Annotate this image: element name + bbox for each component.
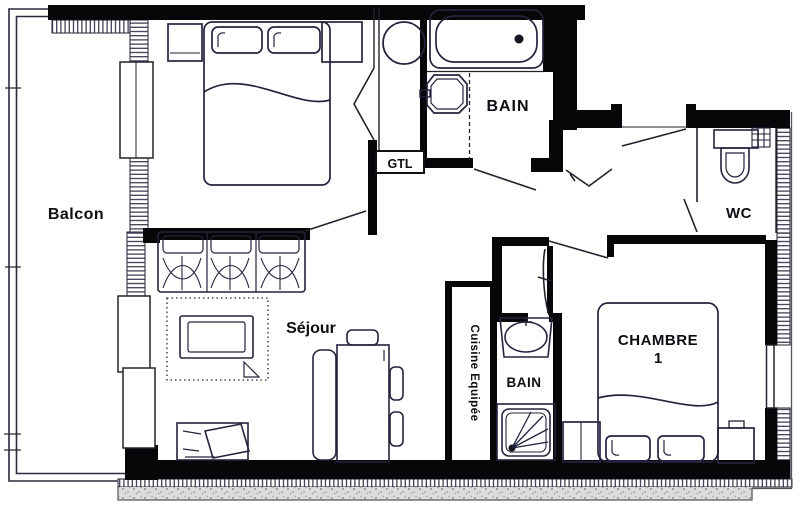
desk-right — [322, 22, 362, 62]
wall-entry-band-right — [688, 110, 790, 128]
bed2-outline — [204, 22, 330, 185]
chambre1-door — [549, 241, 608, 258]
wall-entry-jamb-left — [611, 104, 622, 128]
shower — [497, 404, 555, 460]
wall-bain1-south — [420, 158, 473, 168]
chambre1-furniture — [563, 303, 754, 463]
chair-right-2 — [390, 412, 403, 446]
wall-bottom-left-corner — [125, 445, 158, 480]
wc-shelf — [752, 128, 770, 147]
floor-plan-drawing: Balcon BAIN WC GTL Séjour Cuisine Equipé… — [0, 0, 800, 507]
toilet-cistern — [714, 130, 758, 148]
hatch-left-upper — [130, 20, 148, 68]
label-chambre1-line1: CHAMBRE — [618, 332, 698, 349]
hall-closet-doors — [566, 169, 612, 186]
bed2-pillow-left-fold — [218, 33, 225, 47]
wall-chambre-north — [610, 235, 766, 244]
utility-closet — [376, 22, 425, 173]
balcony-rail-ticks — [4, 88, 21, 450]
nightstand-lamp — [729, 421, 744, 428]
hatch-left-lower — [127, 232, 145, 298]
toilet-bowl-inner — [726, 153, 744, 177]
sejour-slider-lower — [123, 368, 155, 448]
bed1-duvet-fold — [598, 395, 718, 406]
wall-kitchen-left — [445, 281, 452, 465]
hatch-bottom — [118, 479, 792, 487]
sofa — [158, 232, 305, 292]
wall-bedroom2-south — [145, 228, 310, 240]
label-cuisine: Cuisine Equipée — [468, 325, 480, 422]
balcony-rail-inner — [17, 17, 127, 474]
shower-rays — [512, 412, 548, 448]
sink1-inner — [431, 79, 463, 109]
wc-fixtures — [714, 128, 770, 183]
label-gtl: GTL — [388, 157, 413, 171]
bed1-pillow-right — [658, 436, 704, 461]
bathtub-drain — [515, 35, 524, 44]
wall-top — [48, 5, 585, 20]
bed1-pillow-left-fold — [612, 440, 619, 455]
sejour-bedroom-door — [305, 211, 366, 231]
hatch-right-wc — [777, 128, 790, 233]
sink1-outer — [427, 75, 467, 113]
dining-table — [337, 345, 389, 462]
floor-plan-page: Balcon BAIN WC GTL Séjour Cuisine Equipé… — [0, 0, 800, 507]
bed2-duvet-fold — [204, 84, 330, 102]
sejour-slider-upper — [118, 296, 150, 372]
dining-set — [313, 330, 403, 462]
label-bain-top: BAIN — [486, 98, 529, 115]
bedroom2-door — [354, 68, 374, 140]
bed2-pillow-right — [268, 27, 320, 53]
closet-west-line — [374, 8, 379, 150]
washing-machine — [383, 22, 425, 64]
label-balcon: Balcon — [48, 206, 104, 223]
foundation-band — [118, 112, 792, 500]
bed2-pillow-right-fold — [274, 33, 281, 47]
tv-set — [205, 424, 249, 458]
entry-door — [622, 129, 686, 146]
nightstand-right — [718, 428, 754, 463]
label-bain-bottom: BAIN — [507, 375, 542, 390]
rug-corner-fold — [244, 362, 259, 377]
balcony — [4, 9, 126, 481]
wall-bain1-jog-h — [531, 158, 549, 172]
chair-top — [347, 330, 378, 345]
hatch-right-chambre — [777, 233, 790, 345]
wall-entry-jamb-right — [686, 104, 696, 128]
wall-hall-west — [492, 237, 502, 318]
bed1-pillow-right-fold — [664, 440, 671, 455]
wall-bottom — [150, 460, 790, 479]
hatch-left-mid — [130, 155, 148, 232]
label-chambre1-line2: 1 — [654, 350, 662, 367]
walls — [48, 5, 790, 480]
label-sejour: Séjour — [286, 320, 336, 337]
bain1-door — [474, 169, 536, 190]
bench-left — [313, 350, 336, 460]
chair-right-1 — [390, 367, 403, 400]
rug-and-coffee-table — [167, 298, 268, 380]
balcony-rail-outer — [9, 9, 126, 481]
chambre-window — [766, 345, 777, 408]
wall-right-inner-upper — [765, 240, 777, 345]
concrete-speckle-band — [119, 487, 752, 500]
nightstand-left — [168, 24, 202, 61]
sejour-furniture — [158, 232, 403, 462]
tv-stand — [177, 423, 249, 460]
label-wc: WC — [726, 205, 752, 222]
wall-kitchen-top — [445, 281, 497, 287]
sink2-basin — [505, 322, 547, 352]
sofa-pattern — [163, 256, 299, 290]
wall-chambre-door-jamb — [607, 235, 614, 257]
bedroom2-furniture — [168, 22, 362, 185]
wall-right-inner-lower — [765, 408, 777, 460]
wall-entry-band-left — [553, 110, 620, 128]
wc-door — [684, 199, 697, 232]
bed2-pillow-left — [212, 27, 262, 53]
wall-bain1-right — [543, 20, 553, 72]
